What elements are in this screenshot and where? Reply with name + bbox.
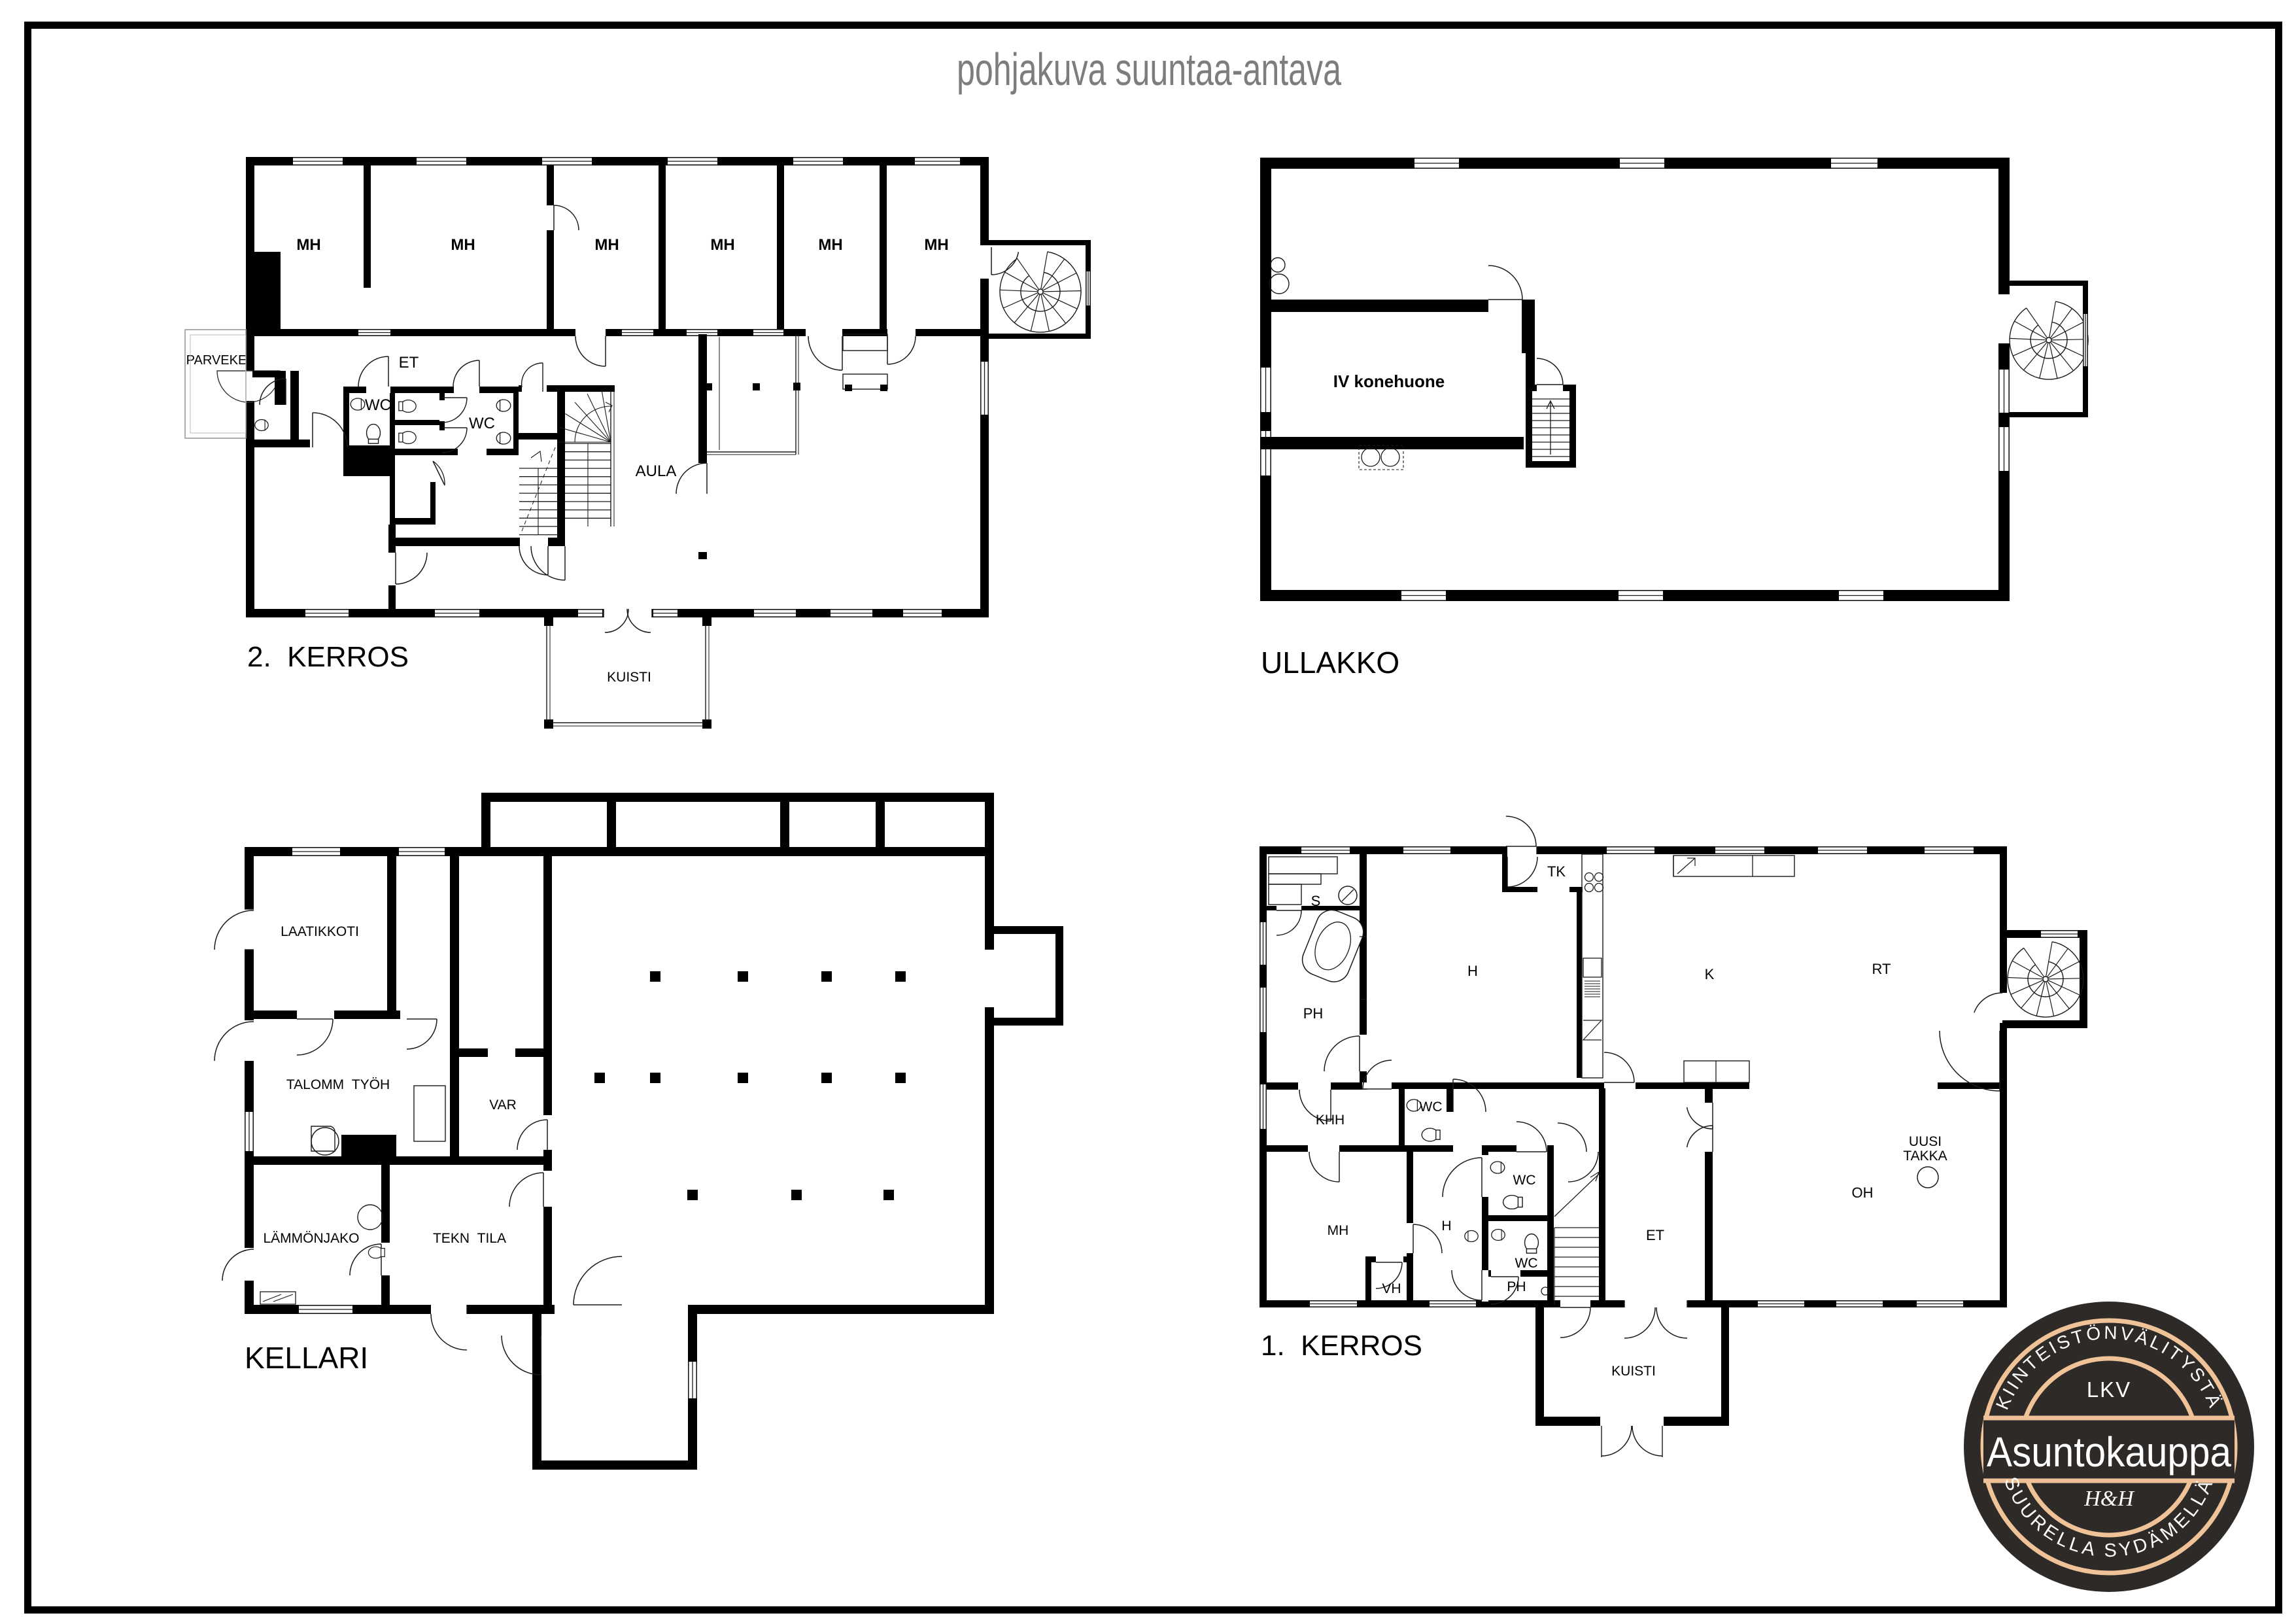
svg-text:PH: PH [1507,1279,1526,1294]
svg-text:TAKKA: TAKKA [1903,1149,1947,1164]
svg-text:TK: TK [1547,863,1566,880]
svg-text:Asuntokauppa: Asuntokauppa [1987,1428,2231,1476]
svg-text:IV konehuone: IV konehuone [1333,371,1445,391]
svg-text:KELLARI: KELLARI [245,1341,368,1375]
svg-text:MH: MH [710,236,734,254]
svg-text:MH: MH [296,236,320,254]
svg-text:ULLAKKO: ULLAKKO [1261,646,1399,680]
svg-text:LÄMMÖNJAKO: LÄMMÖNJAKO [263,1231,359,1246]
svg-text:S: S [1311,893,1321,909]
svg-text:H&H: H&H [2083,1487,2135,1511]
svg-text:ET: ET [1646,1227,1664,1243]
svg-text:KHH: KHH [1316,1113,1345,1128]
svg-text:H: H [1467,963,1478,979]
svg-text:MH: MH [1328,1223,1349,1238]
svg-text:1. KERROS: 1. KERROS [1261,1330,1422,1362]
svg-text:LKV: LKV [2087,1377,2131,1402]
svg-text:TEKN TILA: TEKN TILA [433,1231,506,1246]
svg-text:VAR: VAR [489,1097,517,1113]
svg-text:MH: MH [924,236,948,254]
svg-text:RT: RT [1872,961,1891,977]
svg-text:KUISTI: KUISTI [1611,1364,1656,1379]
svg-text:AULA: AULA [636,462,677,480]
svg-text:H: H [1441,1218,1451,1234]
svg-text:pohjakuva suuntaa-antava: pohjakuva suuntaa-antava [957,44,1341,95]
svg-text:MH: MH [818,236,842,254]
svg-text:KUISTI: KUISTI [607,670,651,685]
svg-text:WC: WC [1515,1256,1538,1271]
svg-text:PARVEKE: PARVEKE [186,353,247,368]
svg-text:TALOMM TYÖH: TALOMM TYÖH [286,1077,390,1092]
svg-text:WC: WC [1420,1099,1443,1114]
svg-text:WC: WC [365,396,391,414]
svg-text:2. KERROS: 2. KERROS [247,641,409,673]
svg-text:WC: WC [469,415,495,432]
svg-text:OH: OH [1852,1184,1874,1201]
svg-text:WC: WC [1513,1173,1536,1188]
svg-text:VH: VH [1382,1281,1401,1296]
svg-text:MH: MH [594,236,619,254]
svg-text:PH: PH [1303,1005,1324,1022]
svg-text:K: K [1705,966,1715,982]
svg-text:UUSI: UUSI [1909,1134,1942,1149]
svg-text:ET: ET [399,354,419,371]
svg-text:LAATIKKOTI: LAATIKKOTI [281,924,359,939]
svg-text:MH: MH [451,236,475,254]
